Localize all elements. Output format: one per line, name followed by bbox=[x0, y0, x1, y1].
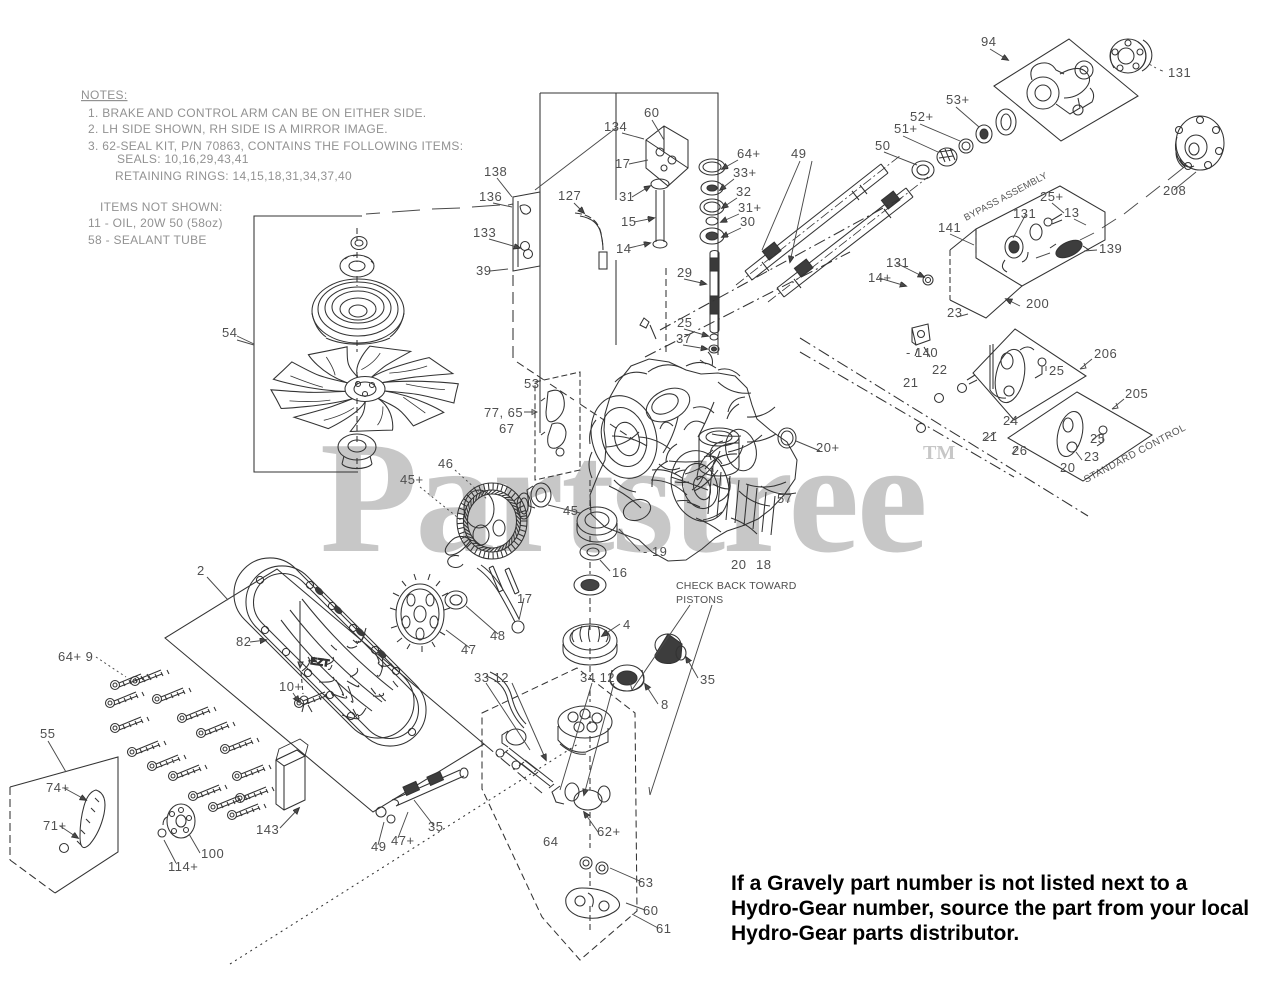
svg-text:114+: 114+ bbox=[168, 859, 198, 874]
svg-text:TM: TM bbox=[923, 442, 955, 464]
svg-text:82: 82 bbox=[236, 634, 251, 649]
svg-text:74+: 74+ bbox=[46, 780, 70, 795]
svg-text:131: 131 bbox=[1013, 206, 1036, 221]
svg-text:138: 138 bbox=[484, 164, 507, 179]
svg-text:18: 18 bbox=[756, 557, 771, 572]
svg-text:2: 2 bbox=[197, 563, 205, 578]
svg-text:Hydro-Gear parts distributor.: Hydro-Gear parts distributor. bbox=[731, 922, 1019, 945]
svg-text:141: 141 bbox=[938, 220, 961, 235]
svg-text:32: 32 bbox=[736, 184, 751, 199]
svg-text:23: 23 bbox=[1084, 449, 1099, 464]
svg-text:94: 94 bbox=[981, 34, 996, 49]
svg-text:14+: 14+ bbox=[868, 270, 892, 285]
svg-text:Hydro-Gear number, source the: Hydro-Gear number, source the part from … bbox=[731, 897, 1249, 920]
svg-text:77, 65: 77, 65 bbox=[484, 405, 523, 420]
svg-text:16: 16 bbox=[612, 565, 627, 580]
svg-text:100: 100 bbox=[201, 846, 224, 861]
svg-text:- 140: - 140 bbox=[906, 345, 938, 360]
svg-text:208: 208 bbox=[1163, 183, 1186, 198]
svg-text:71+: 71+ bbox=[43, 818, 67, 833]
svg-text:33+: 33+ bbox=[733, 165, 757, 180]
svg-text:45+: 45+ bbox=[400, 472, 424, 487]
svg-text:47+: 47+ bbox=[391, 833, 415, 848]
svg-text:13: 13 bbox=[1064, 205, 1079, 220]
svg-text:206: 206 bbox=[1094, 346, 1117, 361]
svg-text:64+: 64+ bbox=[737, 146, 761, 161]
svg-text:20: 20 bbox=[1060, 460, 1075, 475]
svg-text:46: 46 bbox=[438, 456, 453, 471]
svg-text:53: 53 bbox=[524, 376, 539, 391]
svg-text:RETAINING RINGS: 14,15,18,31,3: RETAINING RINGS: 14,15,18,31,34,37,40 bbox=[115, 169, 352, 183]
svg-text:2. LH SIDE SHOWN, RH SIDE IS: 2. LH SIDE SHOWN, RH SIDE IS A MIRROR IM… bbox=[88, 122, 388, 136]
svg-text:4: 4 bbox=[623, 617, 631, 632]
svg-text:62+: 62+ bbox=[597, 824, 621, 839]
svg-text:ITEMS NOT SHOWN:: ITEMS NOT SHOWN: bbox=[100, 200, 223, 214]
svg-text:127: 127 bbox=[558, 188, 581, 203]
svg-text:52+: 52+ bbox=[910, 109, 934, 124]
svg-text:33 12: 33 12 bbox=[474, 670, 509, 685]
svg-text:200: 200 bbox=[1026, 296, 1049, 311]
svg-text:50: 50 bbox=[875, 138, 890, 153]
svg-text:37: 37 bbox=[676, 331, 691, 346]
svg-text:139: 139 bbox=[1099, 241, 1122, 256]
svg-text:55: 55 bbox=[40, 726, 55, 741]
svg-text:29: 29 bbox=[677, 265, 692, 280]
svg-text:48: 48 bbox=[490, 628, 505, 643]
svg-text:133: 133 bbox=[473, 225, 496, 240]
svg-text:CHECK BACK TOWARD: CHECK BACK TOWARD bbox=[676, 580, 797, 592]
svg-text:25: 25 bbox=[1090, 431, 1105, 446]
svg-text:58 - SEALANT TUBE: 58 - SEALANT TUBE bbox=[88, 233, 207, 247]
svg-text:60: 60 bbox=[643, 903, 658, 918]
svg-text:64+ 9: 64+ 9 bbox=[58, 649, 93, 664]
svg-text:136: 136 bbox=[479, 189, 502, 204]
svg-text:20+: 20+ bbox=[816, 440, 840, 455]
svg-text:8: 8 bbox=[661, 697, 669, 712]
svg-text:17: 17 bbox=[517, 591, 532, 606]
svg-text:25: 25 bbox=[1049, 363, 1064, 378]
svg-text:1. BRAKE AND CONTROL ARM CAN: 1. BRAKE AND CONTROL ARM CAN BE ON EITHE… bbox=[88, 106, 426, 120]
svg-text:49: 49 bbox=[791, 146, 806, 161]
svg-text:34 12: 34 12 bbox=[580, 670, 615, 685]
svg-text:PISTONS: PISTONS bbox=[676, 594, 723, 606]
svg-text:143: 143 bbox=[256, 822, 279, 837]
svg-text:54: 54 bbox=[222, 325, 237, 340]
svg-text:10+: 10+ bbox=[279, 679, 303, 694]
svg-text:35: 35 bbox=[700, 672, 715, 687]
svg-text:64: 64 bbox=[543, 834, 558, 849]
svg-text:57: 57 bbox=[777, 491, 792, 506]
svg-text:17: 17 bbox=[615, 156, 630, 171]
svg-text:47: 47 bbox=[461, 642, 476, 657]
svg-text:If a Gravely part number is no: If a Gravely part number is not listed n… bbox=[731, 872, 1188, 895]
svg-text:61: 61 bbox=[656, 921, 671, 936]
svg-text:Partstree: Partstree bbox=[320, 408, 925, 586]
svg-text:24: 24 bbox=[1003, 413, 1018, 428]
svg-text:22: 22 bbox=[932, 362, 947, 377]
svg-text:20: 20 bbox=[731, 557, 746, 572]
svg-text:31+: 31+ bbox=[738, 200, 762, 215]
svg-text:60: 60 bbox=[644, 105, 659, 120]
svg-text:53+: 53+ bbox=[946, 92, 970, 107]
svg-text:14: 14 bbox=[616, 241, 631, 256]
svg-text:21: 21 bbox=[903, 375, 918, 390]
svg-text:SEALS: 10,16,29,43,41: SEALS: 10,16,29,43,41 bbox=[117, 152, 249, 166]
svg-text:39: 39 bbox=[476, 263, 491, 278]
svg-text:NOTES:: NOTES: bbox=[81, 88, 127, 102]
svg-text:25+: 25+ bbox=[1040, 189, 1064, 204]
svg-text:205: 205 bbox=[1125, 386, 1148, 401]
svg-text:3. 62-SEAL KIT, P/N 70863, CO: 3. 62-SEAL KIT, P/N 70863, CONTAINS THE … bbox=[88, 139, 463, 153]
svg-text:63: 63 bbox=[638, 875, 653, 890]
svg-text:11 - OIL, 20W 50 (58oz): 11 - OIL, 20W 50 (58oz) bbox=[88, 216, 223, 230]
svg-text:23: 23 bbox=[947, 305, 962, 320]
svg-text:131: 131 bbox=[1168, 65, 1191, 80]
svg-text:25: 25 bbox=[677, 315, 692, 330]
svg-text:- 19: - 19 bbox=[643, 544, 667, 559]
svg-text:67: 67 bbox=[499, 421, 514, 436]
svg-text:134: 134 bbox=[604, 119, 627, 134]
svg-text:30: 30 bbox=[740, 214, 755, 229]
